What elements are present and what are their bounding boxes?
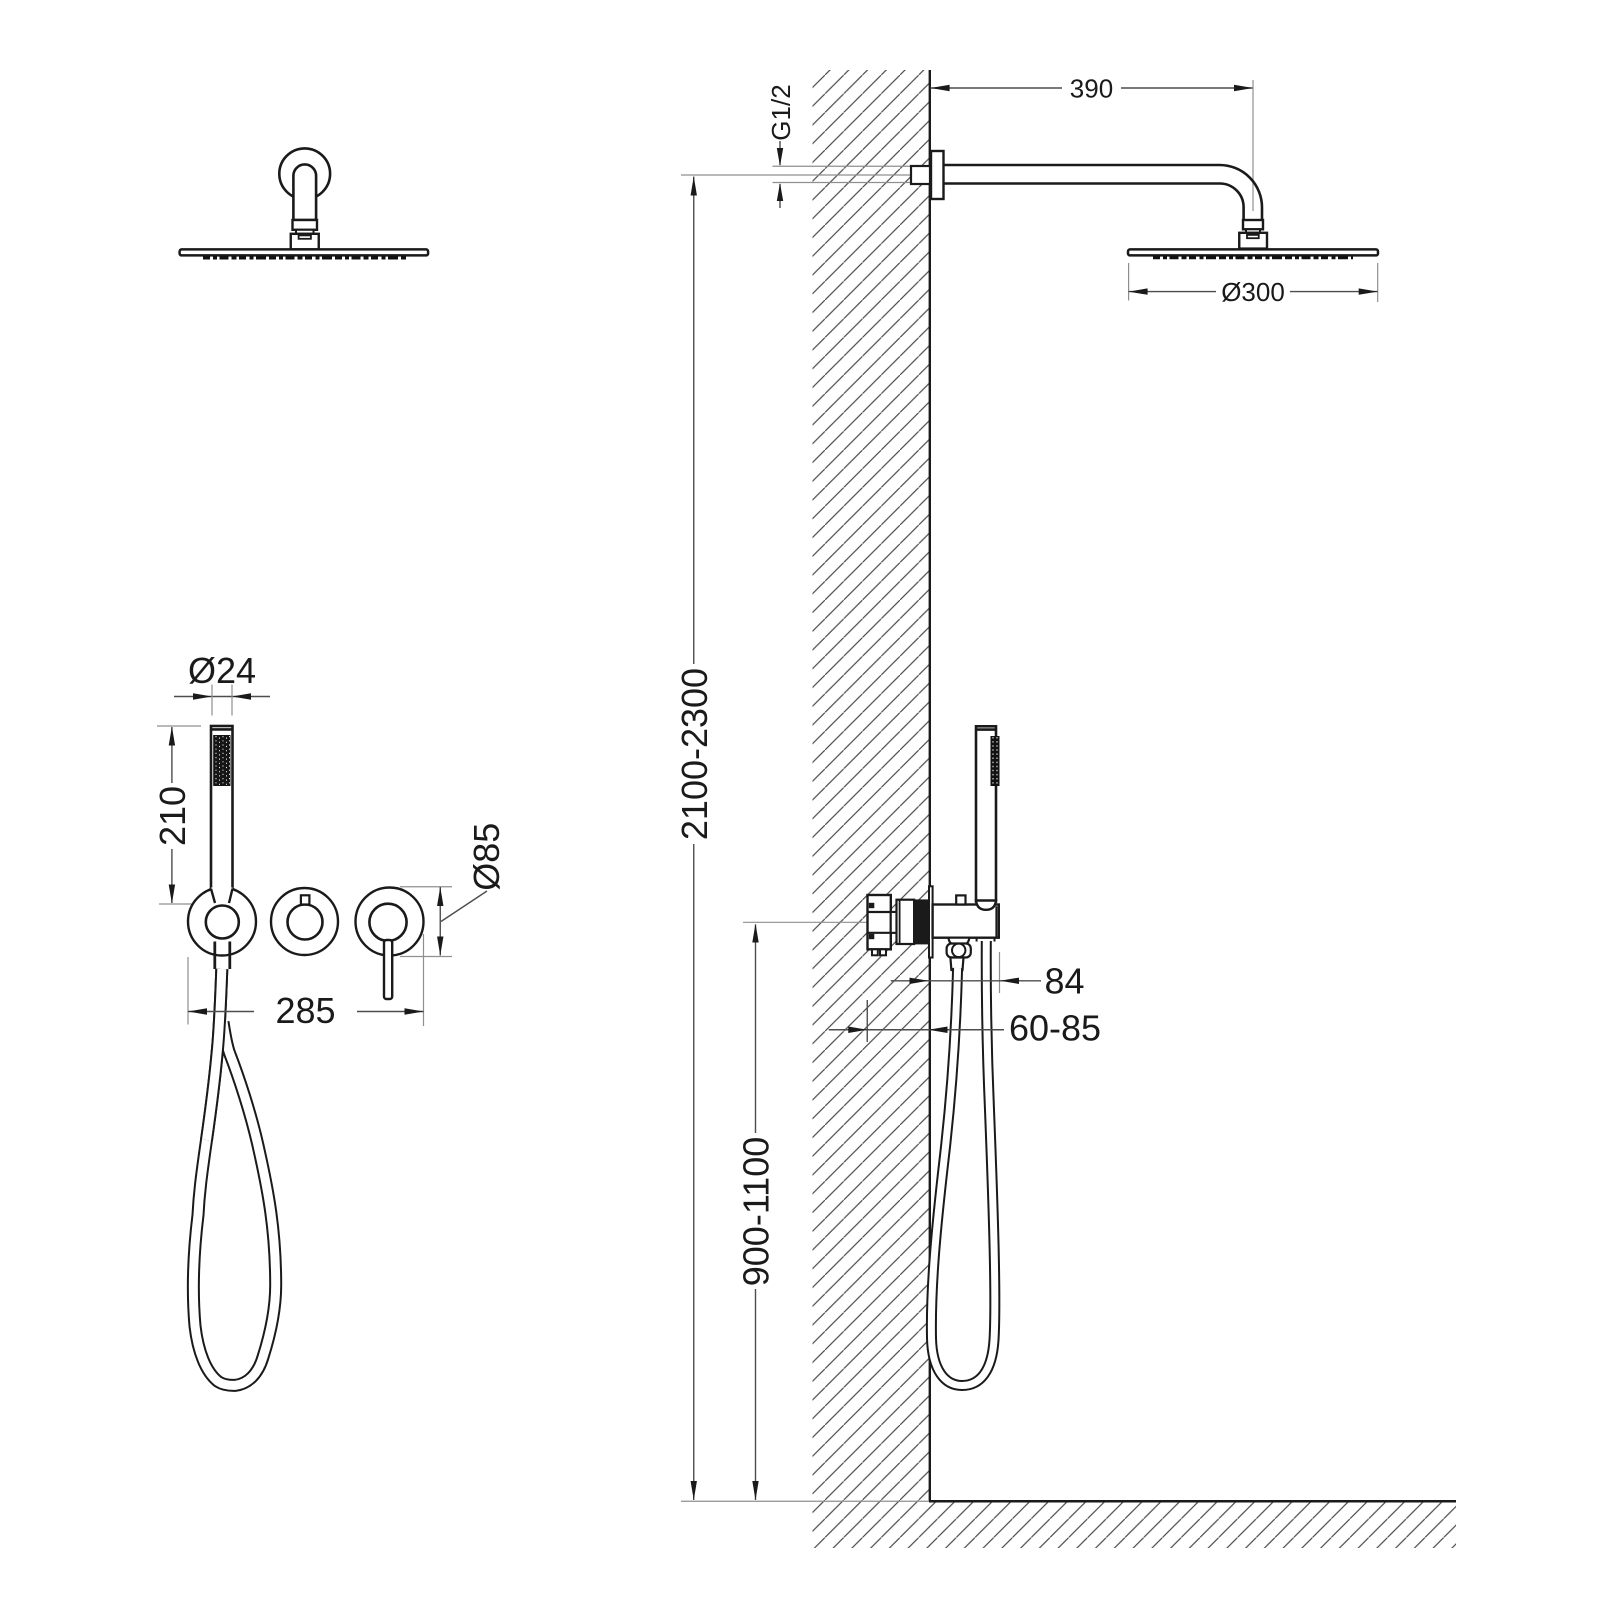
svg-text:390: 390 — [1070, 74, 1113, 104]
svg-text:G1/2: G1/2 — [766, 84, 796, 140]
svg-text:900-1100: 900-1100 — [736, 1137, 777, 1286]
svg-text:84: 84 — [1045, 961, 1085, 1002]
svg-text:2100-2300: 2100-2300 — [674, 668, 715, 840]
svg-text:210: 210 — [152, 786, 193, 846]
svg-text:Ø300: Ø300 — [1221, 277, 1285, 307]
svg-text:Ø85: Ø85 — [466, 823, 507, 891]
svg-text:285: 285 — [275, 990, 335, 1031]
svg-text:60-85: 60-85 — [1009, 1008, 1101, 1049]
svg-text:Ø24: Ø24 — [188, 650, 256, 691]
